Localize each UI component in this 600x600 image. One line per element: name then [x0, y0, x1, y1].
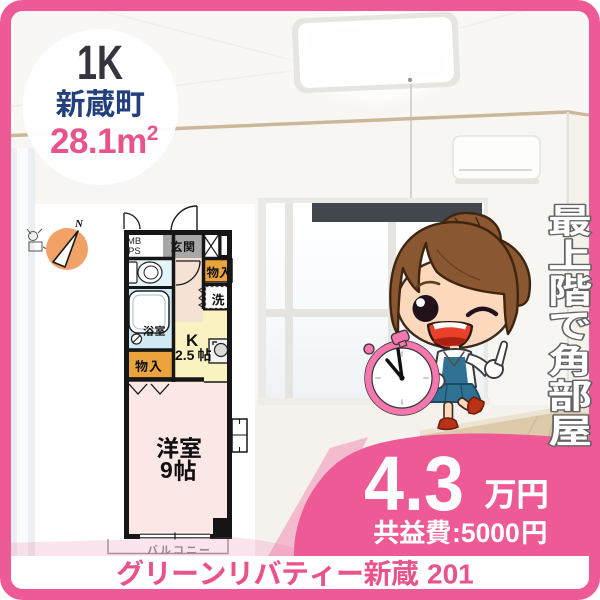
svg-text:28.1m2: 28.1m2: [50, 122, 158, 161]
svg-text:N: N: [74, 218, 84, 230]
svg-text:201: 201: [427, 559, 474, 590]
svg-text:2.5: 2.5: [175, 347, 195, 363]
svg-text:1K: 1K: [77, 37, 123, 90]
svg-text:4.3: 4.3: [364, 441, 464, 527]
svg-text:PS: PS: [128, 246, 141, 257]
svg-text::5000: :5000: [452, 518, 520, 548]
svg-text:9: 9: [160, 457, 173, 483]
